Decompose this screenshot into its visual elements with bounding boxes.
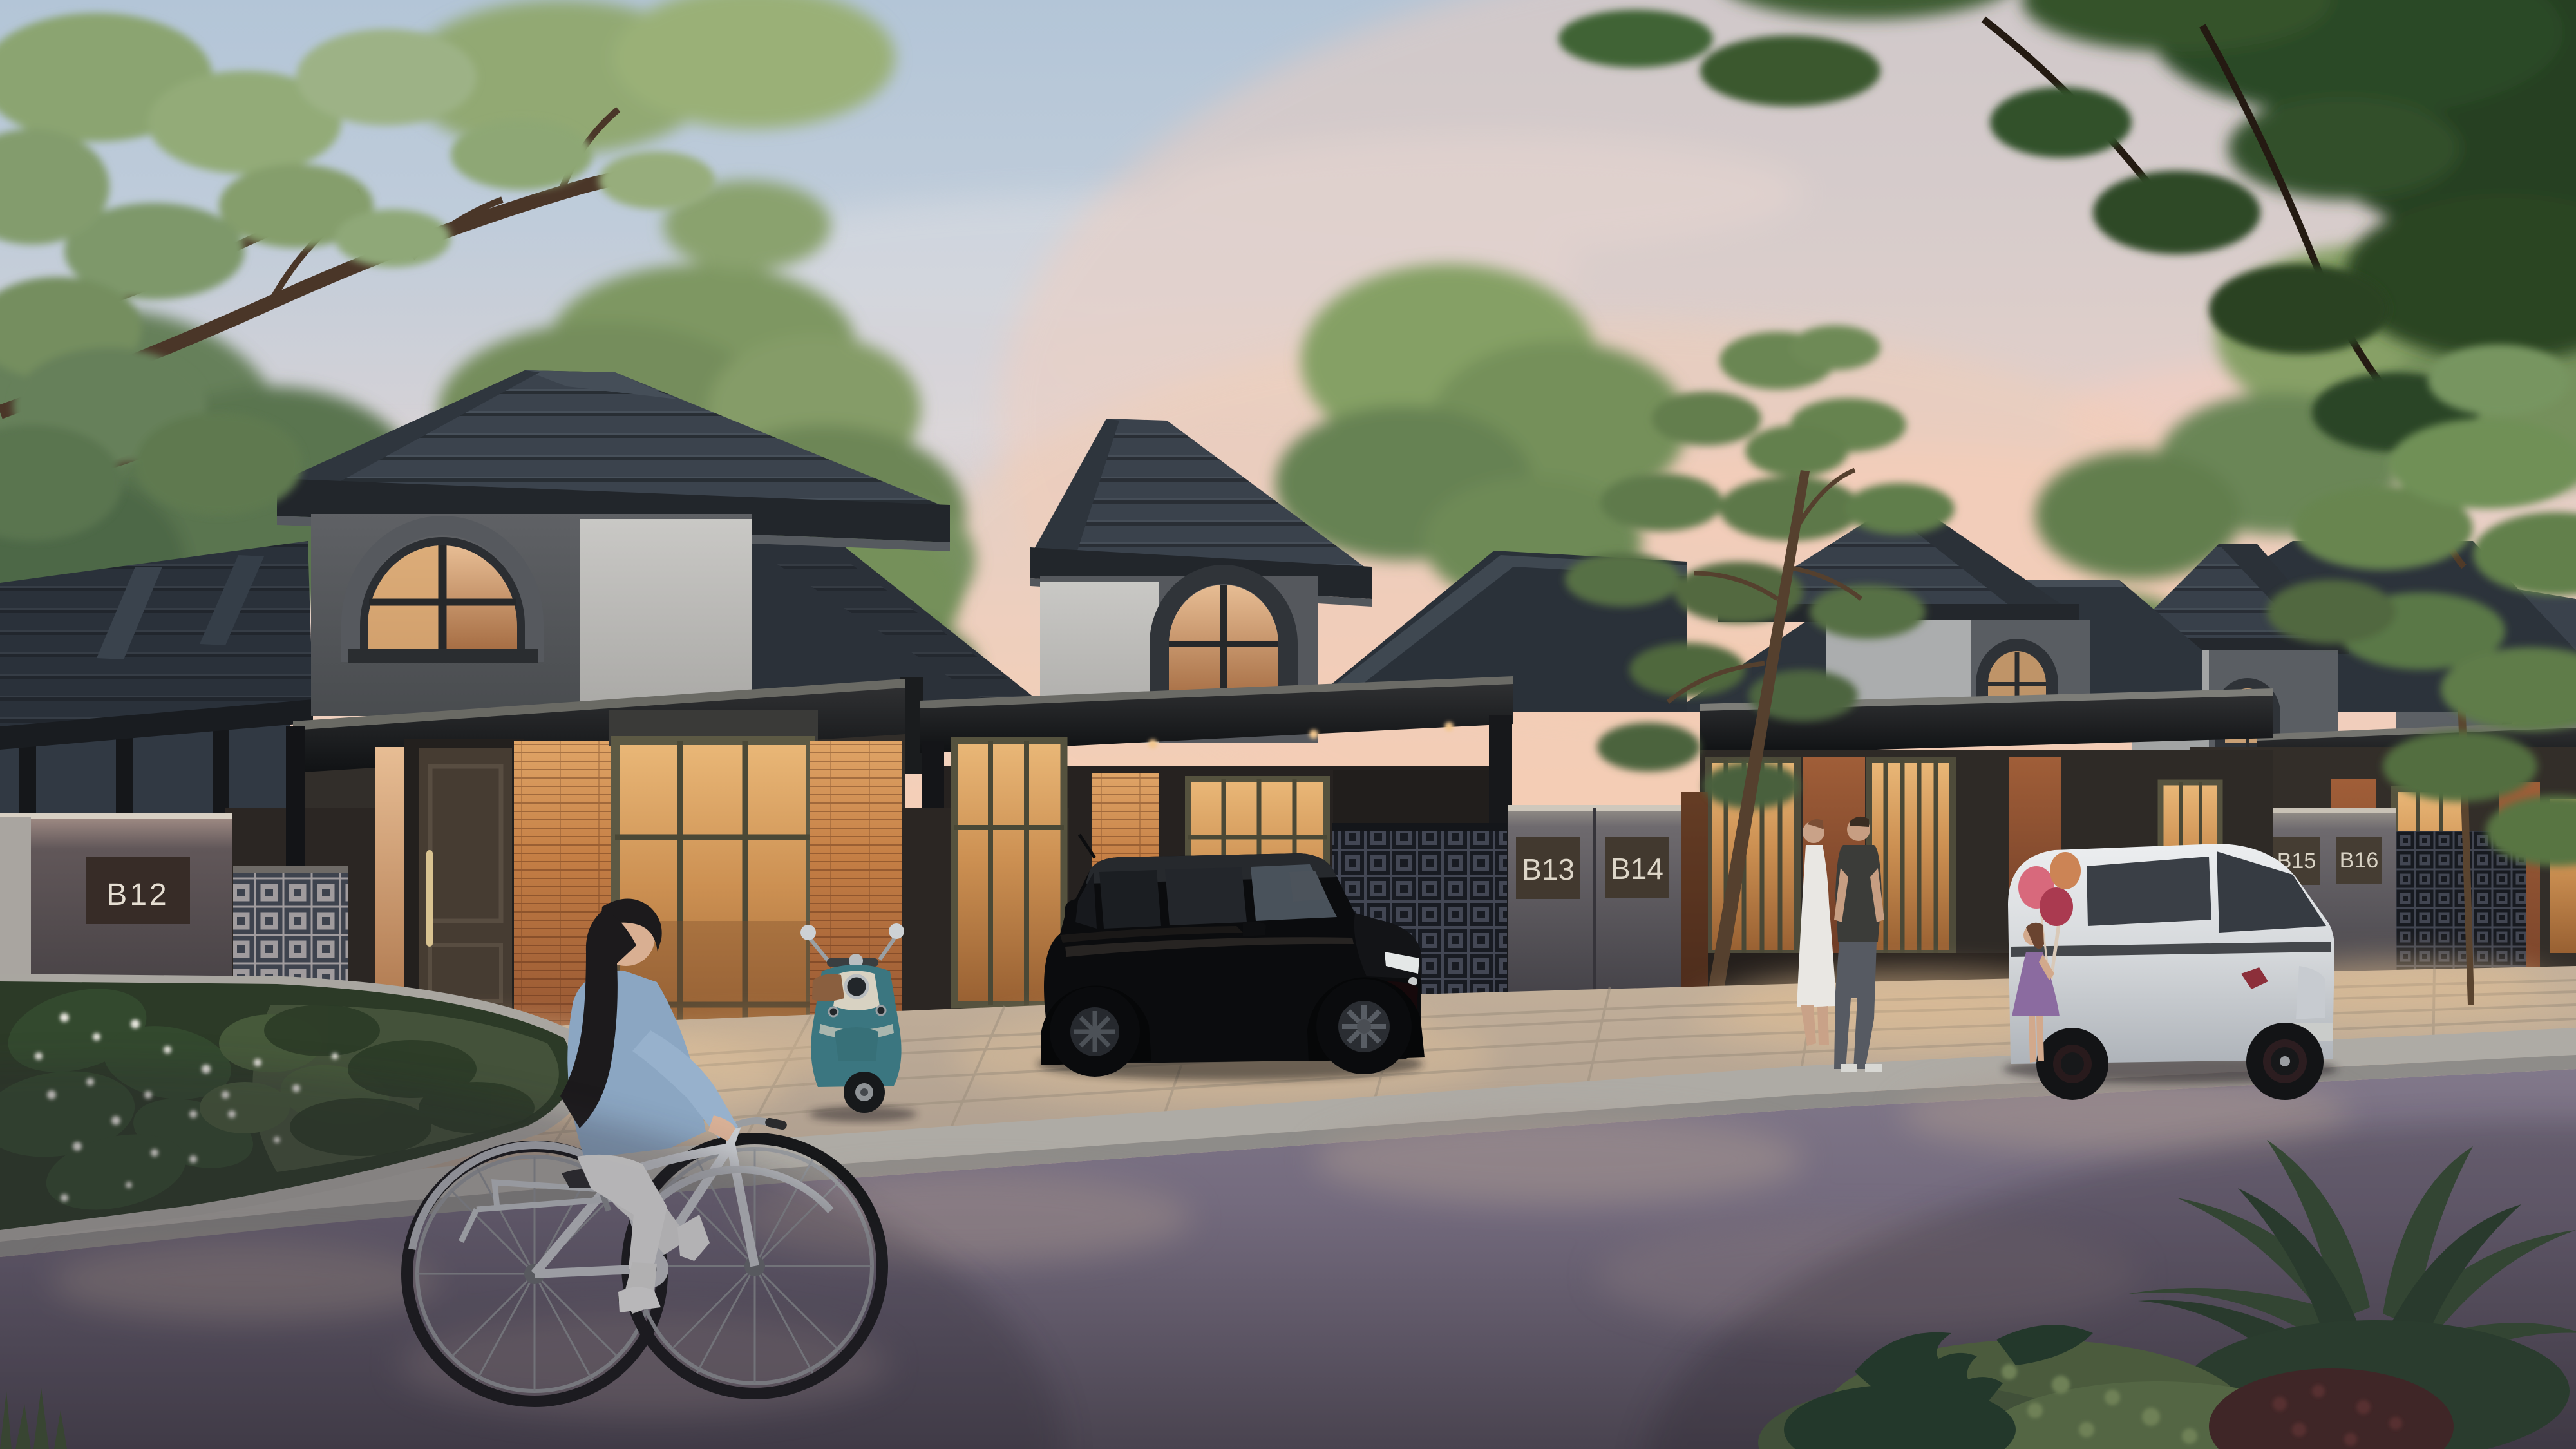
svg-text:B12: B12 — [106, 878, 169, 912]
svg-text:B14: B14 — [1611, 852, 1663, 885]
svg-text:B16: B16 — [2340, 848, 2379, 873]
svg-text:B13: B13 — [1522, 853, 1575, 886]
